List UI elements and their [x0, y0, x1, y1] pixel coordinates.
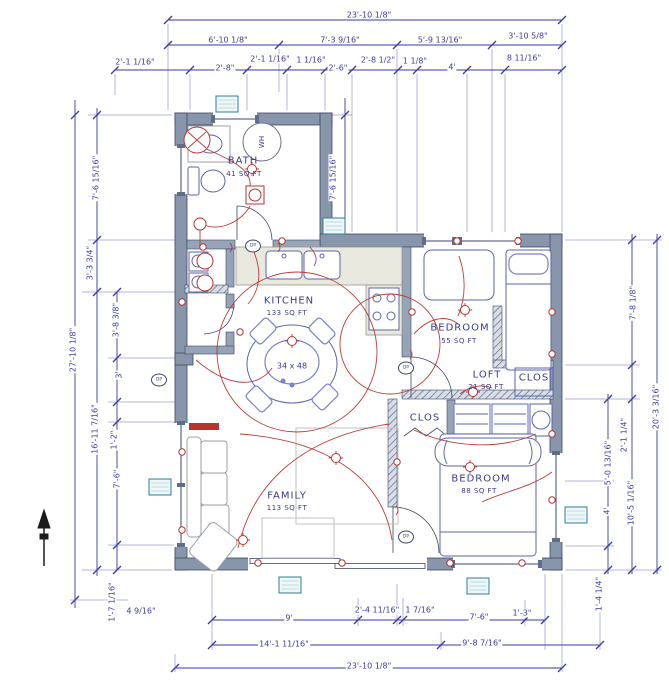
sofa-icon	[187, 437, 201, 537]
wall-light-icon	[194, 218, 206, 230]
dresser-icon	[492, 404, 528, 434]
water-heater-icon	[243, 123, 281, 161]
kitchen-sink-icon	[266, 251, 302, 279]
family-furniture	[187, 423, 398, 573]
light-icon	[236, 533, 250, 547]
corner-table-icon	[530, 404, 552, 436]
floor-plan-graphics	[0, 0, 669, 683]
light-icon	[458, 303, 472, 317]
tv-icon	[189, 423, 219, 430]
kitchen-fixtures	[236, 247, 402, 413]
north-arrow-icon	[38, 510, 50, 566]
bedroom1-furniture	[424, 250, 553, 396]
floor-plan-drawing: 23'-10 1/8"6'-10 1/8"7'-3 9/16"5'-9 13/1…	[0, 0, 669, 683]
dimension-lines	[71, 16, 661, 672]
pillow-icon	[509, 254, 548, 274]
dresser-icon	[424, 250, 494, 300]
dresser-icon	[454, 404, 490, 434]
extension-lines	[70, 24, 662, 672]
